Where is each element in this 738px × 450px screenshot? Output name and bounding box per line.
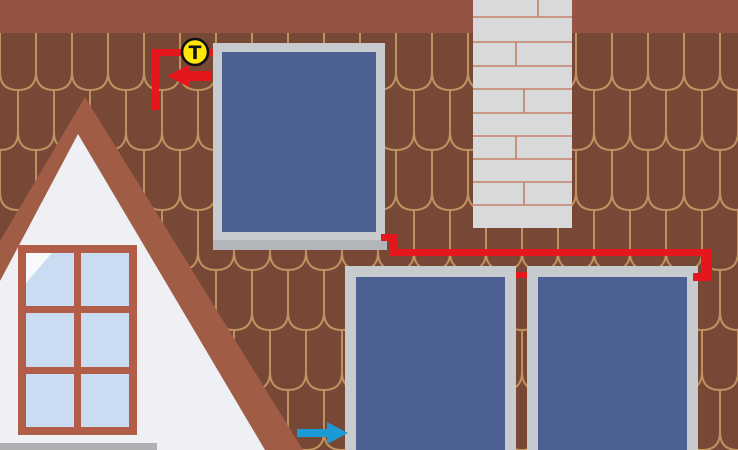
pipe-right-panel-in xyxy=(693,273,712,281)
solar-panel-bottom-left xyxy=(345,266,516,450)
solar-roof-illustration: T xyxy=(0,0,738,450)
chimney xyxy=(473,0,572,228)
window-pane xyxy=(26,313,74,367)
pipe-main-horizontal xyxy=(390,249,712,256)
chimney-body xyxy=(473,0,572,228)
window xyxy=(18,245,137,435)
window-pane xyxy=(81,253,129,306)
window-pane xyxy=(81,313,129,367)
panel-glass xyxy=(538,277,687,450)
temperature-sensor-icon: T xyxy=(182,39,208,65)
panel-glass xyxy=(356,277,505,450)
solar-panel-bottom-right xyxy=(527,266,698,450)
solar-panel-top xyxy=(213,43,387,250)
window-sill xyxy=(0,443,157,450)
window-pane xyxy=(26,374,74,427)
illustration-canvas: T xyxy=(0,0,738,450)
pipe-panel-connector xyxy=(516,272,527,278)
sensor-badge-label: T xyxy=(189,42,202,64)
panel-bottom-rail xyxy=(213,240,387,250)
pipe-sensor-vertical xyxy=(152,49,159,110)
panel-glass xyxy=(222,52,376,232)
window-pane xyxy=(81,374,129,427)
roof-ridge-band xyxy=(0,0,738,33)
